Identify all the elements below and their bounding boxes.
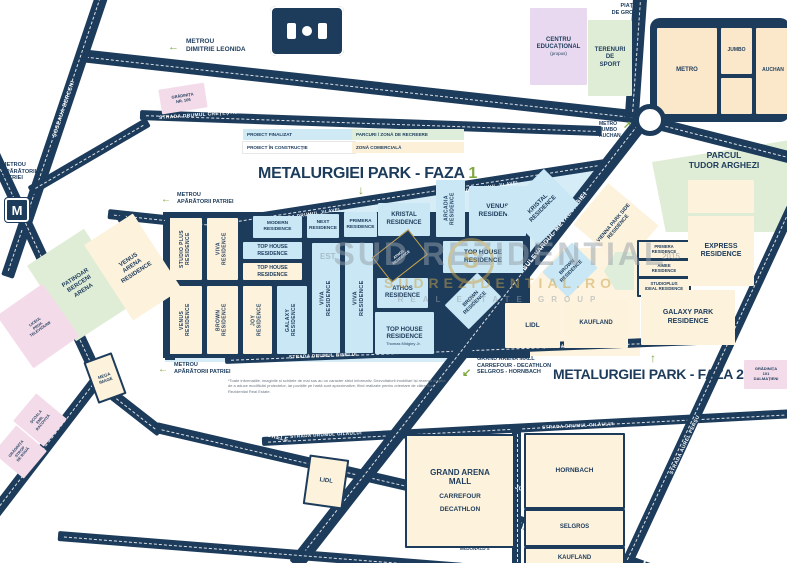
modern-residence: MODERN RESIDENCE (253, 216, 302, 238)
legend-constructie-label: PROIECT ÎN CONSTRUCȚIE (247, 145, 308, 150)
top-house-residence-d: TOP HOUSE RESIDENCE (375, 312, 434, 354)
legend-comercial-label: ZONĂ COMERCIALĂ (356, 145, 401, 150)
arrow-aparatorii-mid: ← (161, 195, 171, 205)
decathlon-label: DECATHLON (440, 506, 480, 514)
metro-m-icon: M (5, 198, 29, 222)
studio-plus-residence: STUDIO PLUS RESIDENCE (170, 218, 202, 280)
metro-store: METRO (657, 28, 717, 114)
legend-constructie: PROIECT ÎN CONSTRUCȚIE (243, 142, 355, 153)
viva-residence-col: VIVA RESIDENCE (207, 218, 238, 280)
lidl-upper: LIDL (505, 303, 560, 348)
unlabeled-parcel (688, 180, 754, 213)
centru-educational-propus: (propus) (550, 51, 567, 56)
label-piata-de-gros: PIAȚA DE GROS (597, 3, 637, 16)
centru-educational: CENTRU EDUCAȚIONAL (propus) (530, 8, 587, 85)
carrefour-label: CARREFOUR (439, 493, 481, 501)
title-faza1-text: METALURGIEI PARK - FAZA (258, 165, 464, 182)
gradinita-106: GRĂDINIȚA NR. 106 (158, 83, 207, 115)
title-faza2: METALURGIEI PARK - FAZA 2 (553, 366, 773, 383)
pictogram-figure-icon (287, 23, 296, 39)
metro-aparatorii-mid: METROU APĂRĂTORII PATRIEI (177, 192, 234, 205)
metro-dimitrie-leonida: METROU DIMITRIE LEONIDA (186, 38, 246, 54)
arrow-aparatorii-bottom: ← (158, 365, 168, 375)
grand-arena-mall-label: GRAND ARENA MALL (430, 468, 490, 487)
venus-residence-col: VENUS RESIDENCE (170, 286, 202, 354)
legend-parcuri: PARCURI / ZONĂ DE RECREERE (352, 129, 464, 140)
next-residence: NEXT RESIDENCE (307, 214, 339, 238)
kaufland-upper: KAUFLAND (564, 300, 628, 348)
kaufland-lower: KAUFLAND (524, 547, 625, 563)
legend-finalizat-label: PROIECT FINALIZAT (247, 132, 292, 137)
road-sign-icon (270, 6, 344, 56)
disclaimer-text: *Toate informațiile, imaginile și schițe… (228, 378, 446, 394)
centru-educational-label: CENTRU EDUCAȚIONAL (537, 37, 581, 51)
roundabout (634, 104, 666, 136)
legend-comercial: ZONĂ COMERCIALĂ (352, 142, 464, 153)
label-thomas-midgley: Thomas Midgley Jr. (386, 342, 421, 347)
jumbo-annex (721, 78, 752, 114)
athos-residence: ATHOS RESIDENCE (377, 278, 428, 308)
terenuri-de-sport: TERENURI DE SPORT (588, 20, 632, 96)
metro-aparatorii-bottom: METROU APĂRĂTORII PATRIEI (174, 362, 231, 375)
viva-residence-tower1: VIVA RESIDENCE (312, 243, 340, 353)
lidl-lower: LIDL (303, 454, 350, 509)
top-house-residence-a: TOP HOUSE RESIDENCE (243, 242, 302, 259)
legend-parcuri-label: PARCURI / ZONĂ DE RECREERE (356, 132, 428, 137)
metro-aparatorii-left: METROU APĂRĂTORII PATRIEI (2, 162, 36, 182)
galaxy-park-residence: GALAXY PARK RESIDENCE (641, 290, 735, 345)
aimee-residence: AIMEE RESIDENCE (637, 259, 691, 278)
road-label-aurel-persu: STRADA AUREL PERȘU (659, 394, 711, 496)
jumbo-store: JUMBO (721, 28, 752, 74)
primera-residence: PRIMERA RESIDENCE (344, 212, 377, 237)
auchan-store: AUCHAN (756, 28, 787, 114)
grand-arena-callout: GRAND ARENA MALL CARREFOUR - DECATHLON S… (477, 356, 551, 376)
selgros: SELGROS (524, 509, 625, 547)
metro-jumbo-auchan: METRO JUMBO AUCHAN (599, 121, 621, 139)
title-faza1: METALURGIEI PARK - FAZA 1 (240, 164, 495, 183)
arrow-grand-arena: ↙ (462, 368, 471, 379)
joy-residence: JOY RESIDENCE (243, 286, 272, 354)
hornbach: HORNBACH (524, 433, 625, 509)
pictogram-figure-icon (318, 23, 327, 39)
viva-residence-tower2: VIVA RESIDENCE (345, 243, 373, 353)
galaxy-residence: GALAXY RESIDENCE (277, 286, 307, 354)
pictogram-dot-icon (302, 26, 312, 36)
legend-finalizat: PROIECT FINALIZAT (243, 129, 355, 140)
brown-residence-col: BROWN RESIDENCE (207, 286, 238, 354)
top-house-residence-c: TOP HOUSE RESIDENCE (443, 241, 523, 273)
express-residence: EXPRESS RESIDENCE (688, 216, 754, 286)
road-bottom (58, 531, 464, 563)
top-house-residence-b: TOP HOUSE RESIDENCE (243, 263, 302, 280)
arrow-metro-jumbo: ↗ (623, 121, 631, 131)
primera-residence-2: PRIMERA RESIDENCE (637, 240, 691, 260)
mcdonalds-label: McDONALD'S (460, 546, 490, 551)
faza2-up-arrow: ↑ (650, 352, 656, 364)
title-faza1-number: 1 (468, 165, 477, 182)
faza1-down-arrow: ↓ (358, 184, 364, 196)
map-canvas: BULEVARDUL METALURGIEI BULEVARDUL METALU… (0, 0, 787, 563)
arrow-dimitrie-leonida: ← (168, 42, 179, 53)
parcul-tudor-arghezi-label: PARCUL TUDOR ARGHEZI (668, 150, 780, 170)
arcadia-residence: ARCADIA RESIDENCE (436, 180, 465, 237)
grand-arena-mall: GRAND ARENA MALL CARREFOUR DECATHLON (405, 434, 515, 548)
